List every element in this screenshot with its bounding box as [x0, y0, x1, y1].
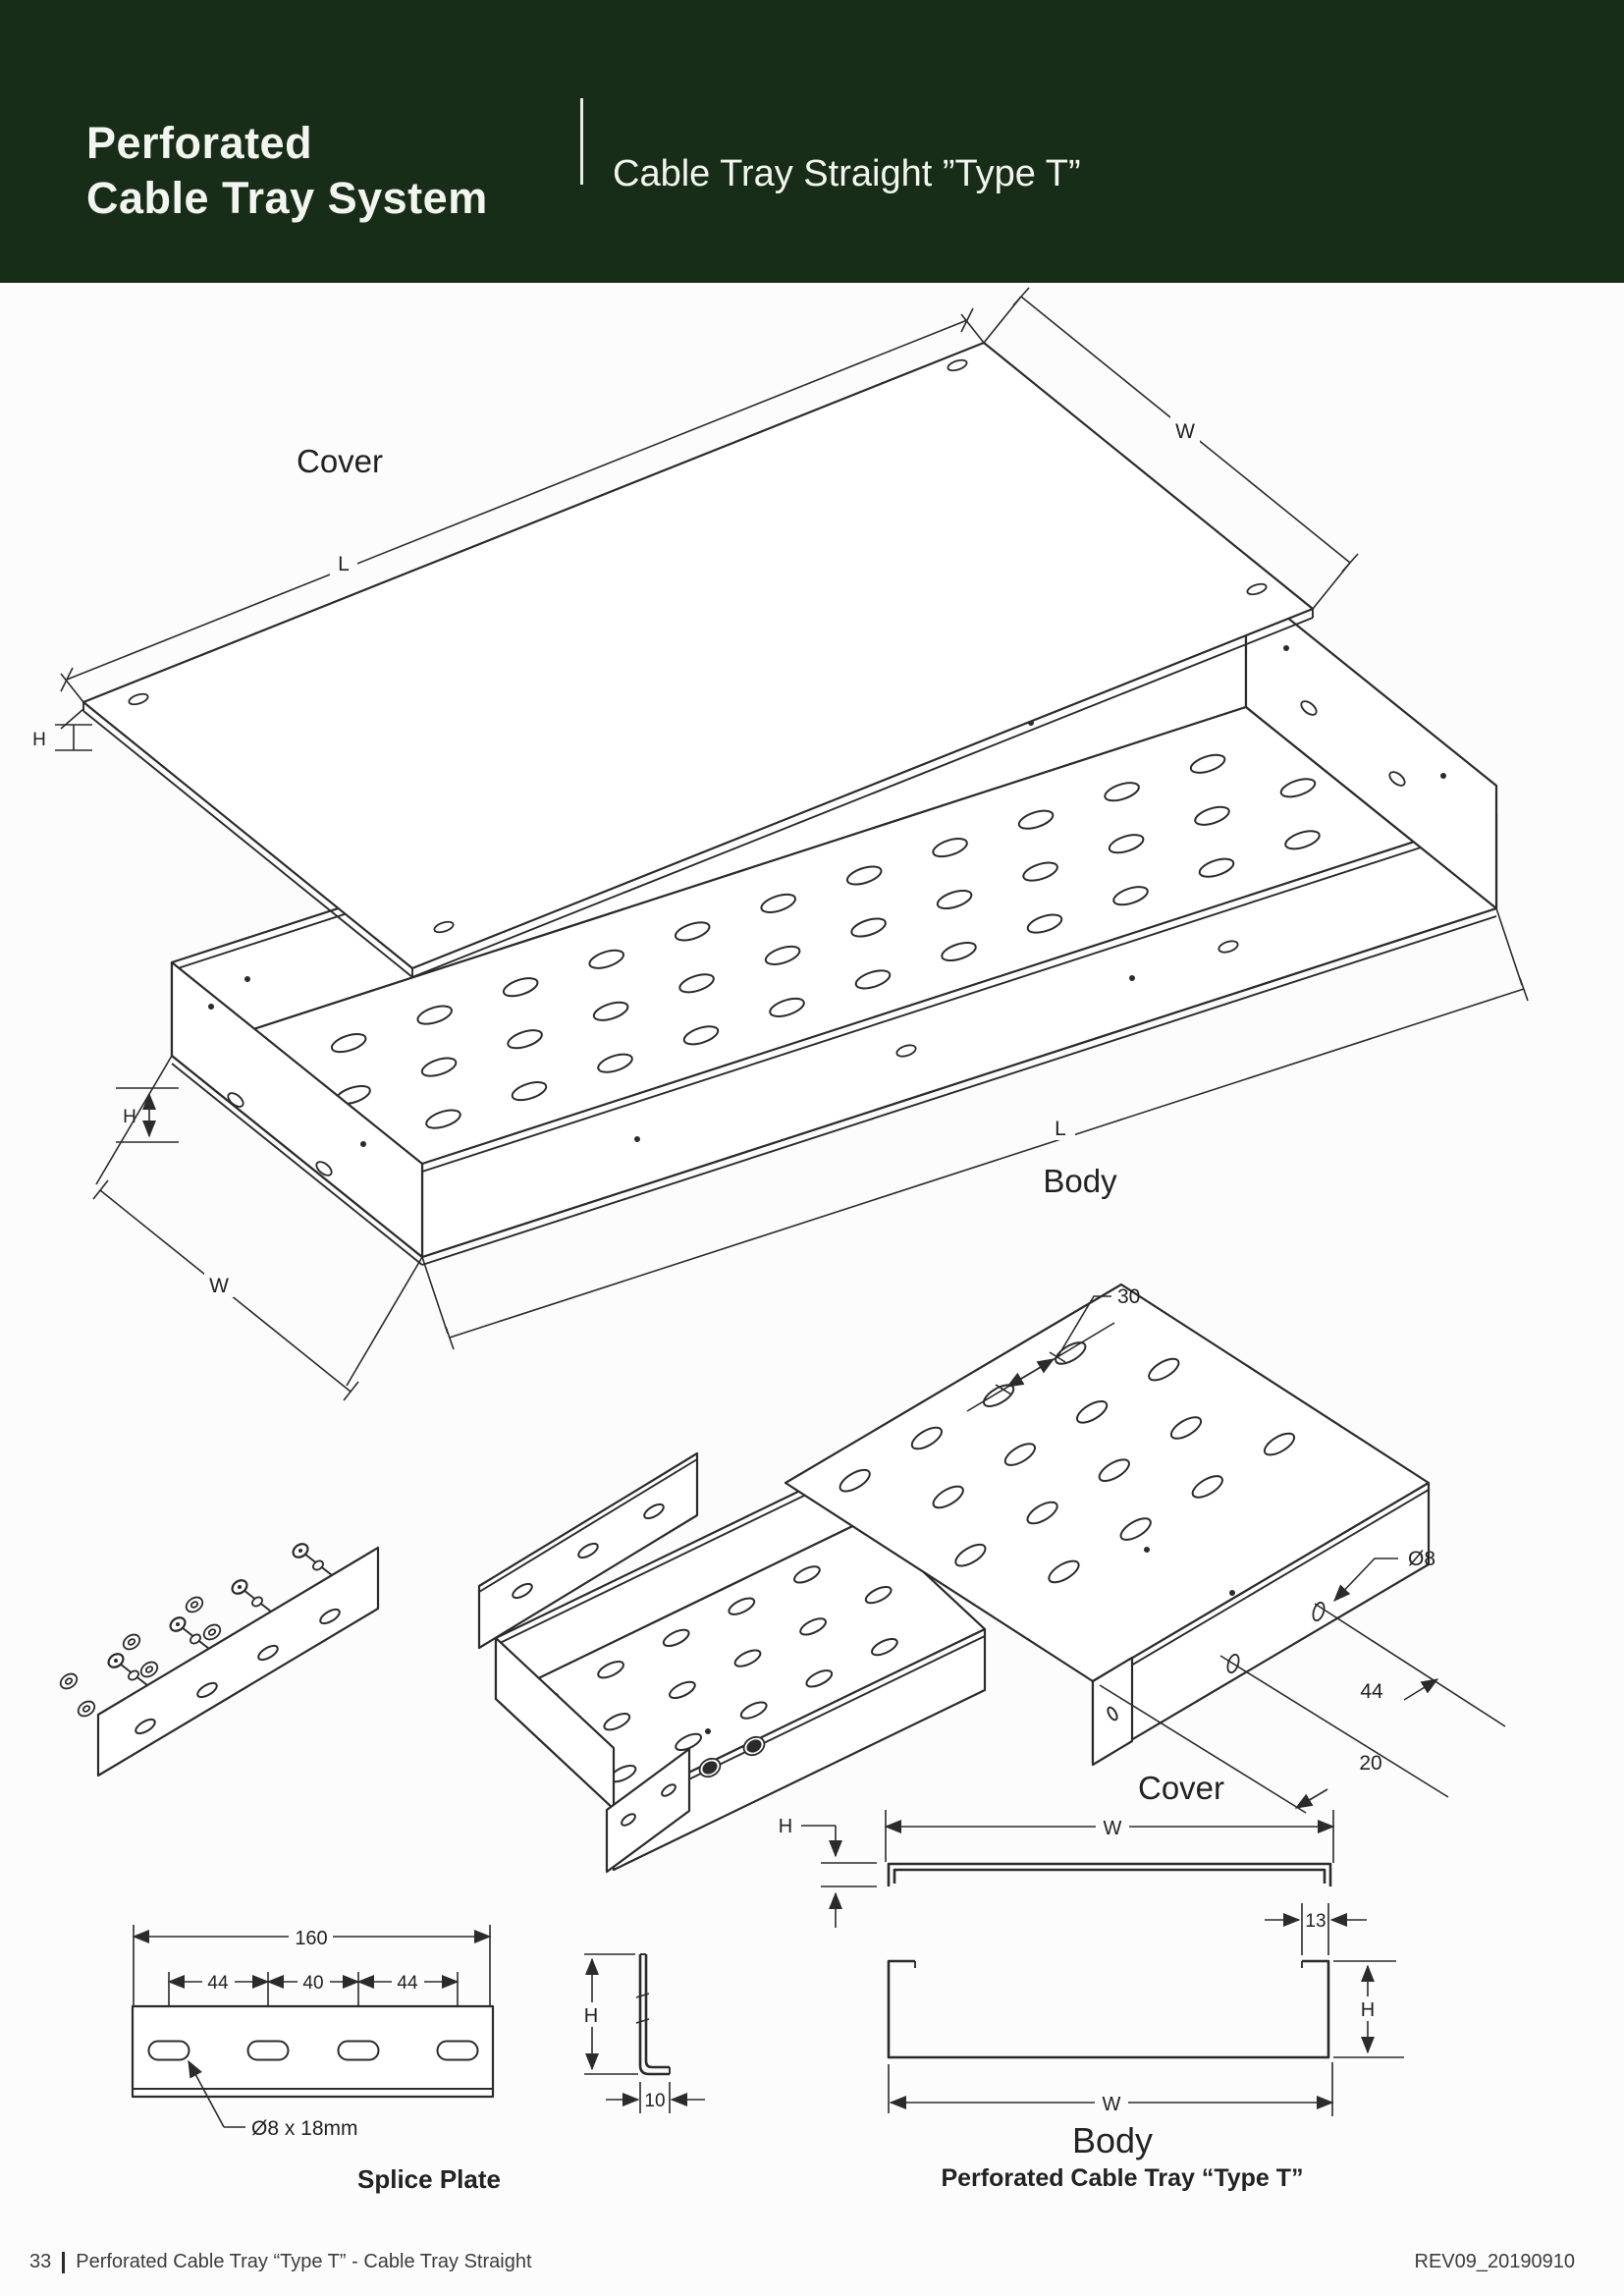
- cover-label: Cover: [297, 443, 383, 479]
- dim-label-slot-pitch: 30: [1117, 1285, 1140, 1308]
- dim-label-hole-spacing: 44: [1360, 1680, 1383, 1703]
- dim-label-cover-H: H: [32, 730, 46, 750]
- dim-label-body-W: W: [209, 1275, 229, 1297]
- dim-label-end-offset: 20: [1359, 1752, 1381, 1775]
- splice-plate-drawing: 160 44 40 44 Ø8 x 18mm Splice Plate: [133, 1924, 501, 2194]
- dim-label-cover-W: W: [1175, 420, 1195, 443]
- dim-label-pitch-right: 44: [397, 1973, 418, 1994]
- exploded-view: L W H Cover H: [32, 288, 1528, 1400]
- dim-label-section-cover-H: H: [779, 1816, 792, 1837]
- section-caption: Perforated Cable Tray “Type T”: [941, 2164, 1303, 2192]
- technical-drawing-canvas: L W H Cover H: [0, 0, 1624, 2296]
- l-profile-section: H 10: [579, 1954, 705, 2113]
- dim-label-profile-foot: 10: [644, 2091, 665, 2111]
- catalog-page: Perforated Cable Tray System Cable Tray …: [0, 0, 1624, 2296]
- footer-title: Perforated Cable Tray “Type T” - Cable T…: [76, 2251, 531, 2273]
- cover-cross-section: W H: [779, 1810, 1333, 1928]
- page-number: 33: [29, 2251, 51, 2273]
- splice-plate-with-bolts: [98, 1541, 378, 1776]
- dim-label-body-lip: 13: [1305, 1911, 1326, 1932]
- dim-label-section-body-H: H: [1361, 1999, 1375, 2021]
- body-label: Body: [1043, 1163, 1117, 1199]
- footer-revision: REV09_20190910: [1415, 2251, 1575, 2273]
- dim-label-pitch-middle: 40: [302, 1973, 323, 1994]
- dim-label-cover-L: L: [338, 553, 350, 575]
- splice-plate-label: Splice Plate: [357, 2164, 501, 2194]
- dim-label-pitch-left: 44: [207, 1973, 229, 1994]
- body-cross-section: 13 H W Body Perforated Cable Tray “Type …: [889, 1903, 1404, 2192]
- dim-label-section-body-W: W: [1103, 2094, 1121, 2115]
- hole-note-label: Ø8 x 18mm: [251, 2117, 358, 2140]
- section-body-label: Body: [1072, 2120, 1153, 2160]
- detail-cover-label: Cover: [1138, 1770, 1224, 1806]
- footer-divider: [62, 2252, 65, 2273]
- dim-label-length: 160: [295, 1928, 327, 1949]
- dim-label-body-L: L: [1055, 1118, 1066, 1140]
- dim-label-section-cover-W: W: [1104, 1818, 1122, 1839]
- page-footer: 33 Perforated Cable Tray “Type T” - Cabl…: [29, 2251, 1575, 2273]
- dim-label-hole-dia: Ø8: [1408, 1548, 1435, 1570]
- dim-label-body-H: H: [123, 1107, 136, 1127]
- dim-label-profile-height: H: [584, 2005, 598, 2027]
